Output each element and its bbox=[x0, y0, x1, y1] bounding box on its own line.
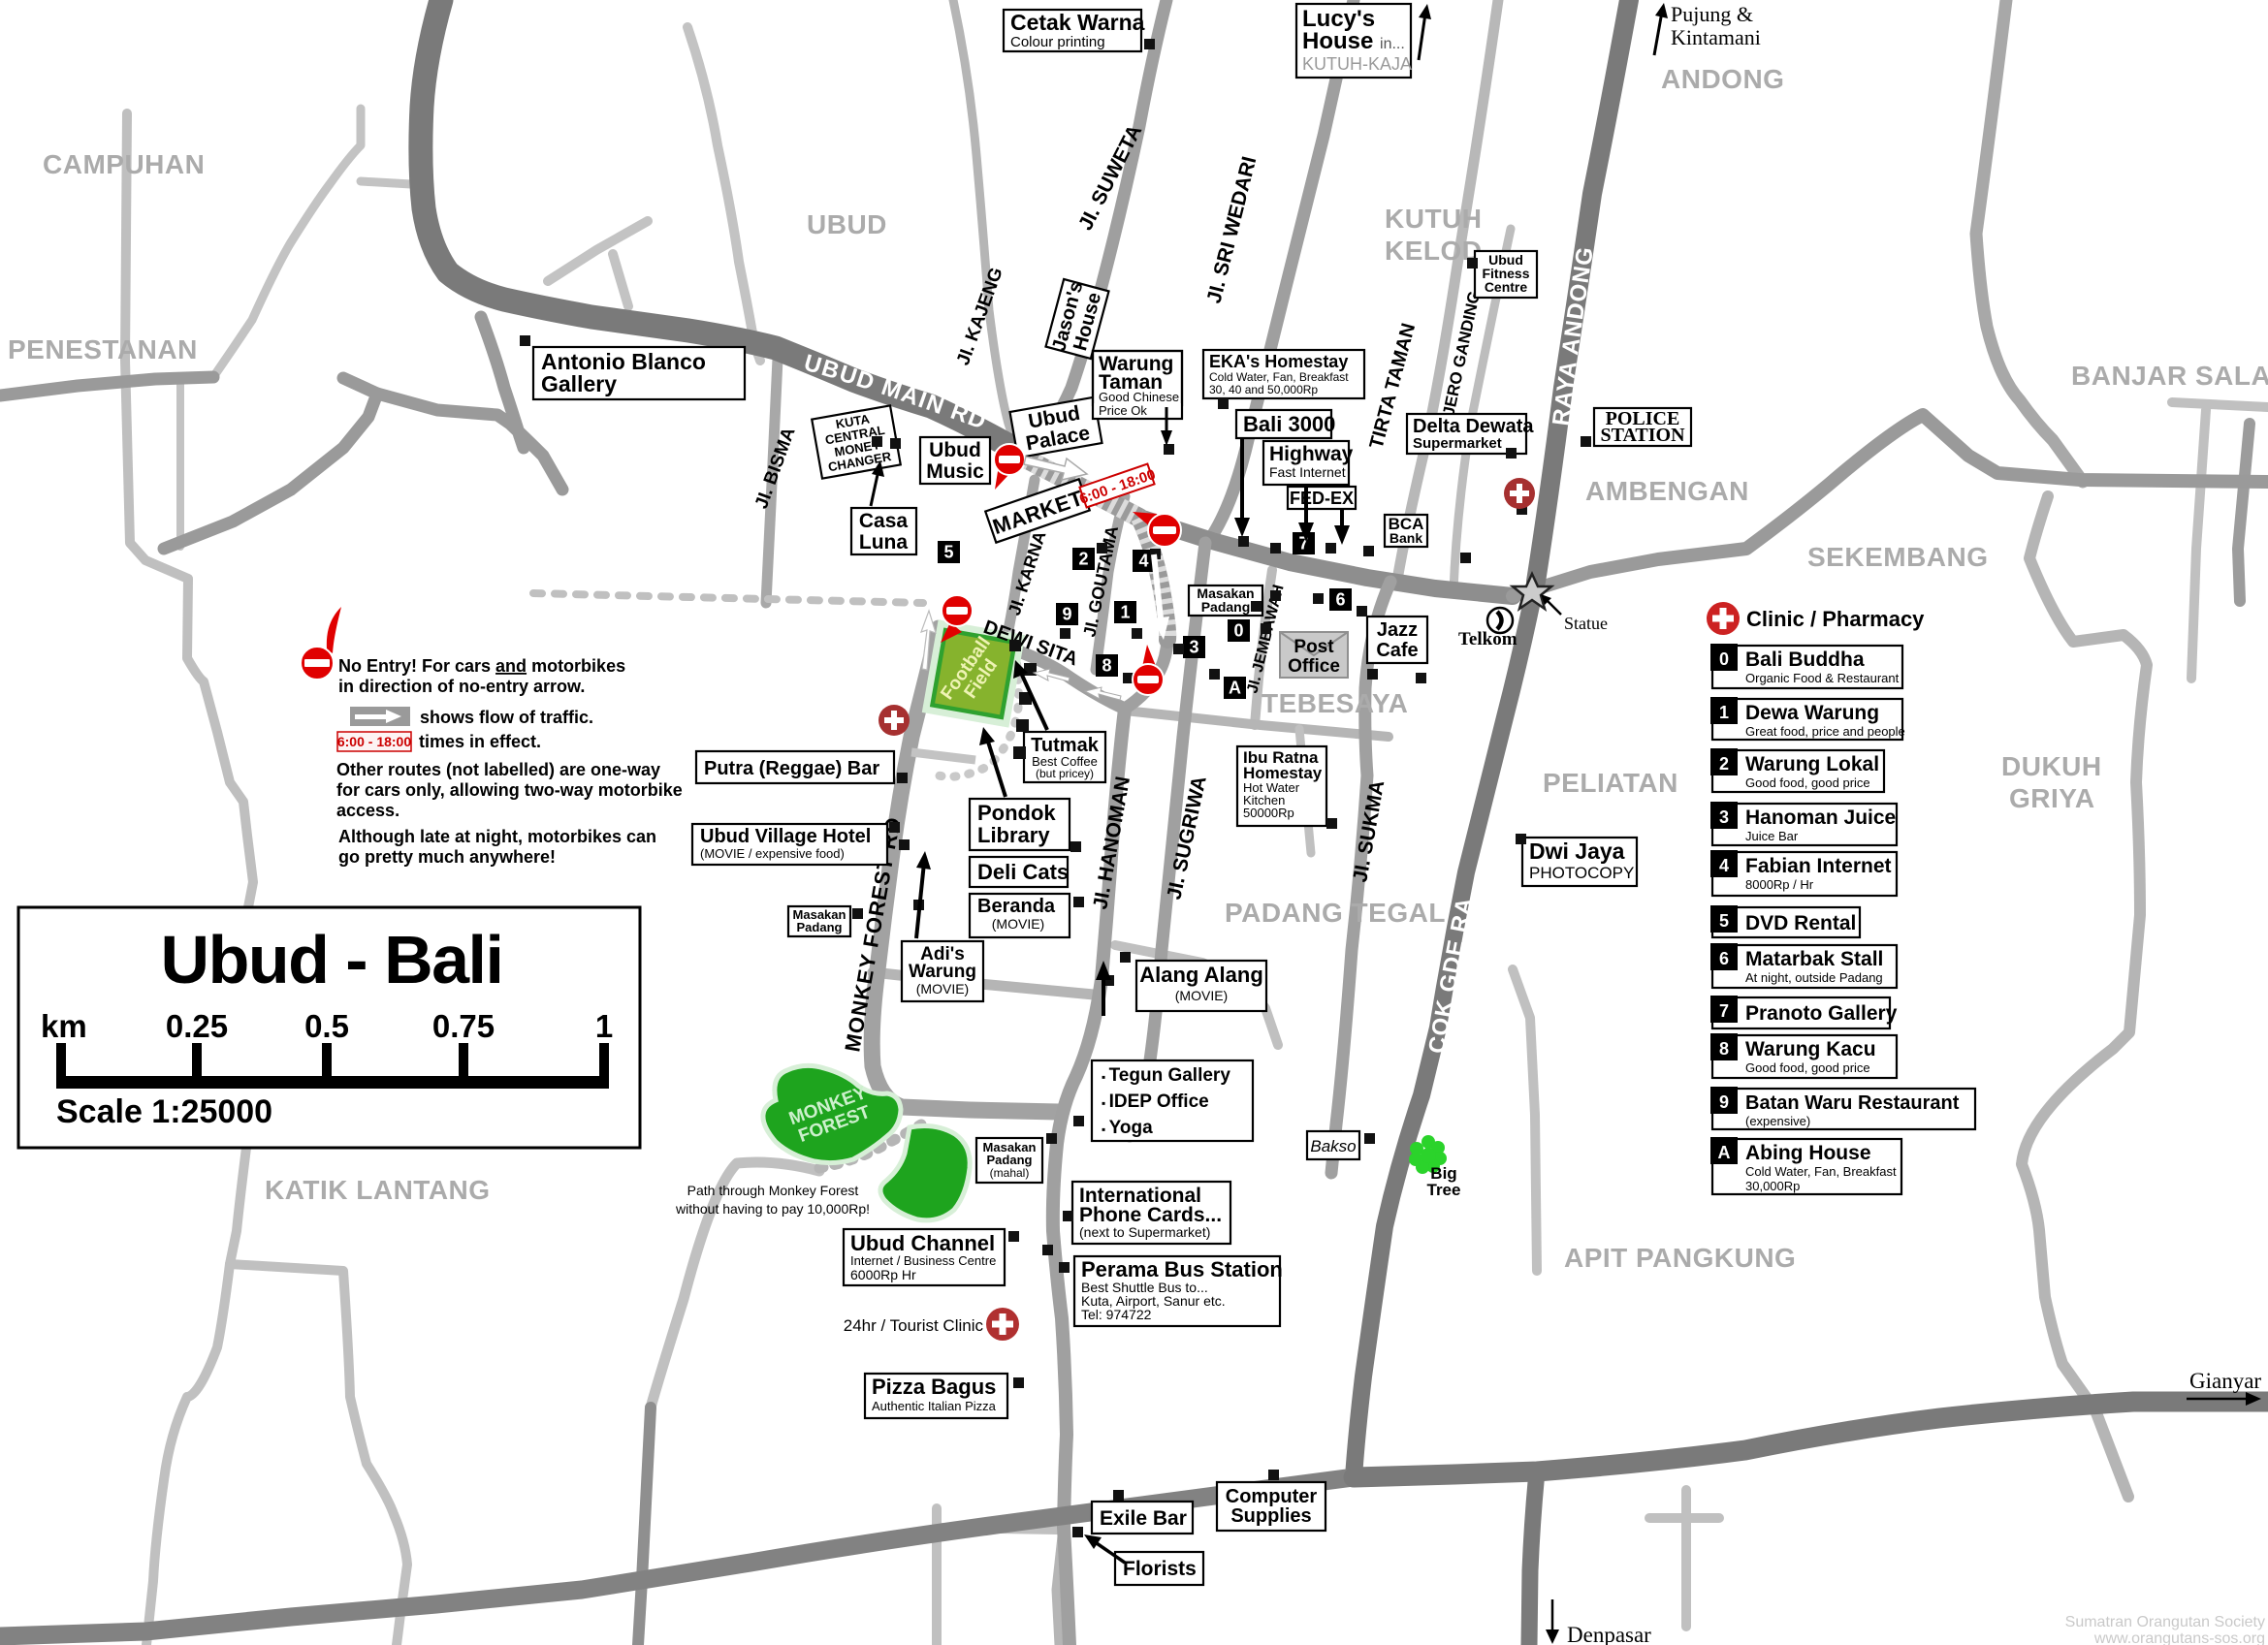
svg-text:PADANG TEGAL: PADANG TEGAL bbox=[1225, 898, 1446, 928]
svg-text:(MOVIE): (MOVIE) bbox=[992, 916, 1044, 932]
svg-text:Delta Dewata: Delta Dewata bbox=[1413, 416, 1534, 437]
svg-text:0.25: 0.25 bbox=[166, 1008, 228, 1044]
svg-text:EKA's Homestay: EKA's Homestay bbox=[1209, 352, 1348, 371]
svg-text:Gianyar: Gianyar bbox=[2189, 1369, 2261, 1393]
svg-text:At night, outside Padang: At night, outside Padang bbox=[1745, 970, 1883, 985]
svg-text:Padang: Padang bbox=[987, 1153, 1033, 1167]
svg-text:BANJAR SALA: BANJAR SALA bbox=[2071, 361, 2268, 391]
svg-text:GRIYA: GRIYA bbox=[2009, 783, 2095, 813]
svg-text:(MOVIE): (MOVIE) bbox=[916, 981, 969, 996]
svg-text:Fabian Internet: Fabian Internet bbox=[1745, 855, 1892, 877]
svg-text:Cafe: Cafe bbox=[1376, 640, 1418, 661]
svg-text:5: 5 bbox=[1719, 911, 1729, 931]
svg-text:Good food, good price: Good food, good price bbox=[1745, 1060, 1870, 1075]
svg-text:24hr / Tourist Clinic: 24hr / Tourist Clinic bbox=[844, 1316, 984, 1335]
svg-text:PHOTOCOPY: PHOTOCOPY bbox=[1529, 864, 1634, 882]
svg-text:DVD Rental: DVD Rental bbox=[1745, 912, 1856, 934]
svg-text:(next to Supermarket): (next to Supermarket) bbox=[1079, 1224, 1210, 1240]
svg-text:Warung Kacu: Warung Kacu bbox=[1745, 1038, 1876, 1060]
svg-text:3: 3 bbox=[1189, 638, 1198, 657]
svg-text:Telkom: Telkom bbox=[1458, 629, 1517, 649]
svg-text:Great food, price and people: Great food, price and people bbox=[1745, 724, 1905, 739]
svg-text:Pizza Bagus: Pizza Bagus bbox=[872, 1375, 996, 1399]
svg-text:Library: Library bbox=[977, 823, 1050, 847]
svg-text:Supplies: Supplies bbox=[1230, 1505, 1311, 1527]
svg-text:Statue: Statue bbox=[1564, 614, 1608, 633]
svg-text:Scale 1:25000: Scale 1:25000 bbox=[56, 1093, 272, 1130]
svg-text:Path through Monkey Forest: Path through Monkey Forest bbox=[687, 1183, 859, 1198]
svg-text:CAMPUHAN: CAMPUHAN bbox=[43, 149, 205, 179]
svg-text:Ubud Village Hotel: Ubud Village Hotel bbox=[700, 826, 871, 847]
svg-text:Florists: Florists bbox=[1123, 1558, 1197, 1580]
svg-text:KATIK LANTANG: KATIK LANTANG bbox=[265, 1175, 491, 1205]
svg-text:Fast Internet: Fast Internet bbox=[1269, 464, 1346, 480]
svg-text:Cetak Warna: Cetak Warna bbox=[1010, 10, 1145, 35]
svg-text:Bali Buddha: Bali Buddha bbox=[1745, 649, 1865, 671]
svg-text:times in effect.: times in effect. bbox=[419, 732, 541, 751]
svg-text:5: 5 bbox=[943, 543, 953, 562]
svg-text:Warung: Warung bbox=[909, 962, 976, 982]
svg-text:3: 3 bbox=[1719, 807, 1729, 827]
svg-text:Tutmak: Tutmak bbox=[1031, 735, 1100, 756]
svg-text:Dewa Warung: Dewa Warung bbox=[1745, 702, 1879, 724]
svg-text:Padang: Padang bbox=[1201, 599, 1251, 615]
svg-text:Perama Bus Station: Perama Bus Station bbox=[1081, 1257, 1283, 1281]
svg-text:go pretty much anywhere!: go pretty much anywhere! bbox=[338, 847, 556, 867]
svg-text:APIT PANGKUNG: APIT PANGKUNG bbox=[1564, 1243, 1796, 1273]
svg-text:Although late at night, motorb: Although late at night, motorbikes can bbox=[338, 827, 656, 846]
svg-text:Ubud: Ubud bbox=[929, 439, 981, 461]
svg-text:Padang: Padang bbox=[797, 920, 843, 934]
svg-text:Cold Water, Fan, Breakfast: Cold Water, Fan, Breakfast bbox=[1745, 1164, 1897, 1179]
svg-text:STATION: STATION bbox=[1600, 425, 1685, 446]
svg-text:A: A bbox=[1229, 679, 1241, 698]
svg-text:1: 1 bbox=[1120, 603, 1130, 622]
svg-text:(but pricey): (but pricey) bbox=[1036, 767, 1094, 780]
svg-text:Denpasar: Denpasar bbox=[1567, 1623, 1651, 1645]
svg-text:ANDONG: ANDONG bbox=[1661, 64, 1784, 94]
svg-text:shows flow of traffic.: shows flow of traffic. bbox=[420, 708, 593, 727]
svg-text:7: 7 bbox=[1719, 1001, 1729, 1021]
svg-text:0: 0 bbox=[1719, 649, 1729, 669]
svg-text:Other routes (not labelled) ar: Other routes (not labelled) are one-way bbox=[336, 760, 660, 779]
svg-text:Colour printing: Colour printing bbox=[1010, 34, 1105, 50]
svg-text:(MOVIE / expensive food): (MOVIE / expensive food) bbox=[700, 846, 845, 861]
svg-text:AMBENGAN: AMBENGAN bbox=[1585, 476, 1749, 506]
svg-text:2: 2 bbox=[1719, 754, 1729, 774]
svg-text:Putra (Reggae) Bar: Putra (Reggae) Bar bbox=[704, 758, 879, 779]
svg-text:Jazz: Jazz bbox=[1377, 619, 1418, 641]
svg-text:▪ IDEP Office: ▪ IDEP Office bbox=[1102, 1091, 1209, 1112]
svg-text:Juice Bar: Juice Bar bbox=[1745, 829, 1799, 843]
svg-text:A: A bbox=[1718, 1143, 1731, 1162]
svg-text:2: 2 bbox=[1078, 550, 1088, 569]
svg-text:km: km bbox=[41, 1008, 87, 1044]
svg-text:KUTUH-KAJA: KUTUH-KAJA bbox=[1302, 54, 1412, 74]
svg-text:Tree: Tree bbox=[1427, 1181, 1461, 1199]
svg-text:Internet / Business Centre: Internet / Business Centre bbox=[850, 1253, 996, 1268]
svg-text:6000Rp Hr: 6000Rp Hr bbox=[850, 1267, 916, 1282]
svg-text:Bakso: Bakso bbox=[1310, 1137, 1356, 1155]
svg-text:Highway: Highway bbox=[1269, 443, 1354, 465]
svg-text:www.orangutans-sos.org: www.orangutans-sos.org bbox=[2093, 1630, 2265, 1645]
svg-text:Phone Cards...: Phone Cards... bbox=[1079, 1204, 1222, 1226]
svg-text:SEKEMBANG: SEKEMBANG bbox=[1807, 542, 1989, 572]
svg-text:0.5: 0.5 bbox=[304, 1008, 349, 1044]
svg-text:6:00 - 18:00: 6:00 - 18:00 bbox=[337, 734, 411, 749]
svg-text:Computer: Computer bbox=[1226, 1486, 1318, 1507]
svg-text:No Entry! For cars and motorb: No Entry! For cars and motorbikes bbox=[338, 656, 625, 676]
svg-text:Deli Cats: Deli Cats bbox=[977, 860, 1069, 884]
svg-text:4: 4 bbox=[1138, 552, 1148, 571]
svg-text:Cold Water, Fan, Breakfast: Cold Water, Fan, Breakfast bbox=[1209, 370, 1349, 384]
svg-text:DUKUH: DUKUH bbox=[2001, 751, 2102, 781]
svg-text:▪ Tegun Gallery: ▪ Tegun Gallery bbox=[1102, 1065, 1230, 1086]
svg-text:▪ Yoga: ▪ Yoga bbox=[1102, 1118, 1153, 1138]
svg-text:Tel: 974722: Tel: 974722 bbox=[1081, 1307, 1152, 1322]
svg-text:(expensive): (expensive) bbox=[1745, 1114, 1810, 1128]
svg-text:Kintamani: Kintamani bbox=[1671, 25, 1761, 49]
svg-text:30, 40 and 50,000Rp: 30, 40 and 50,000Rp bbox=[1209, 383, 1318, 396]
svg-text:1: 1 bbox=[595, 1008, 613, 1044]
svg-text:PENESTANAN: PENESTANAN bbox=[8, 334, 198, 364]
svg-text:30,000Rp: 30,000Rp bbox=[1745, 1179, 1800, 1193]
svg-text:6: 6 bbox=[1335, 590, 1345, 610]
svg-text:Matarbak Stall: Matarbak Stall bbox=[1745, 948, 1883, 970]
svg-text:Authentic Italian Pizza: Authentic Italian Pizza bbox=[872, 1399, 997, 1413]
svg-text:UBUD: UBUD bbox=[807, 209, 887, 239]
svg-text:FED-EX: FED-EX bbox=[1290, 489, 1354, 508]
svg-text:Batan Waru Restaurant: Batan Waru Restaurant bbox=[1745, 1092, 1960, 1114]
svg-text:Luna: Luna bbox=[859, 531, 908, 554]
svg-text:9: 9 bbox=[1062, 605, 1071, 624]
svg-text:8: 8 bbox=[1102, 656, 1111, 676]
svg-text:9: 9 bbox=[1719, 1092, 1729, 1112]
svg-text:Good food, good price: Good food, good price bbox=[1745, 775, 1870, 790]
svg-text:Gallery: Gallery bbox=[541, 371, 617, 396]
svg-text:Supermarket: Supermarket bbox=[1413, 435, 1502, 452]
svg-text:0.75: 0.75 bbox=[432, 1008, 495, 1044]
svg-text:KUTUH: KUTUH bbox=[1385, 204, 1483, 234]
svg-text:Sumatran Orangutan Society: Sumatran Orangutan Society bbox=[2065, 1614, 2265, 1630]
svg-text:50000Rp: 50000Rp bbox=[1243, 806, 1294, 820]
svg-text:Bali 3000: Bali 3000 bbox=[1243, 412, 1335, 436]
svg-text:Beranda: Beranda bbox=[977, 896, 1056, 917]
svg-text:Pranoto Gallery: Pranoto Gallery bbox=[1745, 1002, 1898, 1025]
svg-text:4: 4 bbox=[1719, 856, 1729, 875]
svg-text:6: 6 bbox=[1719, 949, 1729, 968]
svg-text:PELIATAN: PELIATAN bbox=[1543, 768, 1678, 798]
svg-text:(mahal): (mahal) bbox=[990, 1166, 1030, 1180]
svg-text:Post: Post bbox=[1294, 637, 1334, 657]
svg-text:Centre: Centre bbox=[1485, 279, 1528, 295]
svg-text:Alang Alang: Alang Alang bbox=[1139, 963, 1263, 987]
svg-text:Price Ok: Price Ok bbox=[1099, 403, 1147, 418]
svg-text:Casa: Casa bbox=[859, 510, 909, 532]
svg-text:Clinic / Pharmacy: Clinic / Pharmacy bbox=[1746, 607, 1925, 631]
svg-text:Pujung &: Pujung & bbox=[1671, 2, 1753, 26]
svg-text:in direction of no-entry arrow: in direction of no-entry arrow. bbox=[338, 677, 585, 696]
svg-text:Good Chinese: Good Chinese bbox=[1099, 390, 1179, 404]
svg-text:Abing House: Abing House bbox=[1745, 1142, 1871, 1164]
svg-text:1: 1 bbox=[1719, 703, 1729, 722]
svg-text:8: 8 bbox=[1719, 1039, 1729, 1059]
svg-text:Organic Food & Restaurant: Organic Food & Restaurant bbox=[1745, 671, 1900, 685]
svg-text:Ubud - Bali: Ubud - Bali bbox=[161, 922, 503, 997]
svg-text:Ubud Channel: Ubud Channel bbox=[850, 1231, 995, 1255]
svg-text:Exile Bar: Exile Bar bbox=[1100, 1507, 1187, 1530]
svg-text:8000Rp / Hr: 8000Rp / Hr bbox=[1745, 877, 1814, 892]
svg-text:0: 0 bbox=[1233, 621, 1243, 641]
svg-text:without having to pay 10,000Rp: without having to pay 10,000Rp! bbox=[675, 1201, 870, 1217]
svg-text:Bank: Bank bbox=[1390, 530, 1422, 546]
svg-text:Office: Office bbox=[1288, 656, 1340, 677]
svg-text:access.: access. bbox=[336, 801, 399, 820]
svg-text:Hanoman Juice: Hanoman Juice bbox=[1745, 807, 1896, 829]
svg-text:Dwi Jaya: Dwi Jaya bbox=[1529, 838, 1625, 864]
svg-text:TEBESAYA: TEBESAYA bbox=[1262, 688, 1408, 718]
svg-text:Pondok: Pondok bbox=[977, 801, 1056, 825]
svg-text:(MOVIE): (MOVIE) bbox=[1175, 988, 1228, 1003]
svg-text:for cars only, allowing two-wa: for cars only, allowing two-way motorbik… bbox=[336, 780, 683, 800]
svg-text:Music: Music bbox=[926, 460, 984, 483]
svg-text:Warung Lokal: Warung Lokal bbox=[1745, 753, 1879, 775]
